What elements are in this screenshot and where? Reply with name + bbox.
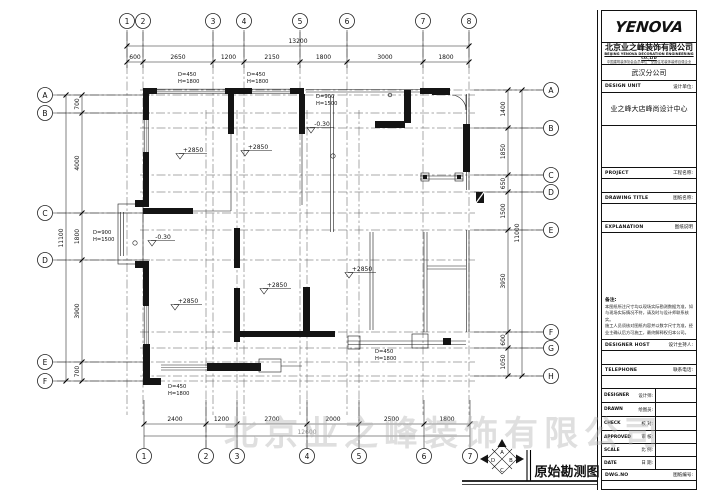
walls [118, 88, 470, 385]
field-label-cn: 设计单位: [673, 84, 693, 90]
dim-bottom-3: 2000 [325, 416, 340, 423]
window-label: D=450 [375, 349, 393, 355]
field-label-en: TELEPHONE [605, 368, 637, 373]
compass-letter-bottom: C [500, 468, 504, 474]
window-label: D=450 [168, 384, 186, 390]
field-date: DATE日 期: [602, 457, 696, 470]
field-label-en: DWG.NO [605, 473, 628, 478]
logo-text: YENOVA [614, 18, 684, 36]
dim-right-5: 600 [500, 334, 507, 346]
level-label: +2850 [352, 266, 372, 273]
field-label-en: DESIGNER HOST [605, 343, 650, 348]
window-label: H=1800 [168, 391, 189, 397]
remarks-line: 业主确认后方可施工，最终解释权归本公司。 [605, 330, 693, 337]
dim-right-0: 1400 [500, 101, 507, 116]
dim-right-2: 650 [500, 178, 507, 190]
field-drawn: DRAWN绘图员: [602, 403, 696, 417]
window-label: H=1500 [93, 237, 114, 243]
drawing-title-value-cell [602, 204, 696, 222]
grid-bubble-left-E: E [43, 358, 48, 367]
field-label-en: EXPLANATION [605, 225, 643, 230]
level-label: +2850 [178, 298, 198, 305]
approved-value-cell [656, 431, 696, 443]
field-dwg-no: DWG.NO 图纸编号: [602, 470, 696, 481]
dim-left-2: 1800 [74, 229, 81, 244]
dim-bottom-5: 1800 [439, 416, 454, 423]
designer-host-value-cell [602, 351, 696, 365]
remarks-line: 施工人员须核对图纸内容并以数字尺寸为准，经 [605, 323, 693, 330]
dim-left-3: 3900 [74, 303, 81, 318]
scale-value-cell [656, 444, 696, 456]
field-label-en: PROJECT [605, 171, 629, 176]
empty-cell [602, 126, 696, 168]
grid-bubble-left-C: C [42, 209, 47, 218]
level-label: +2850 [183, 147, 203, 154]
field-designer-host: DESIGNER HOST 设计主持人: [602, 340, 696, 351]
dim-right-total: 11000 [514, 223, 521, 242]
field-label-cn: 比 例: [641, 447, 653, 453]
dim-bottom-0: 2400 [167, 416, 182, 423]
remarks-title: 备注: [605, 296, 693, 303]
dim-top-1: 2650 [170, 54, 185, 61]
dim-right-1: 1850 [500, 144, 507, 159]
grid-bubble-top-6: 6 [345, 17, 350, 26]
field-label-cn: 联系电话: [673, 367, 693, 373]
grid-bubble-top-5: 5 [298, 17, 303, 26]
dim-top-5: 3000 [377, 54, 392, 61]
grid-bubble-left-D: D [42, 256, 48, 265]
dim-left-0: 700 [74, 98, 81, 110]
dim-top-total: 13200 [288, 38, 307, 45]
grid-bubble-left-F: F [43, 377, 47, 386]
grid-bubble-right-C: C [548, 171, 553, 180]
field-label-en: APPROVED [604, 435, 631, 440]
dim-top-4: 1800 [316, 54, 331, 61]
designer-value-cell [656, 389, 696, 402]
dim-top-3: 2150 [264, 54, 279, 61]
check-value-cell [656, 417, 696, 430]
empty-cell [602, 481, 696, 489]
dim-right-4: 3950 [500, 273, 507, 288]
grid-bubble-right-A: A [548, 86, 554, 95]
field-designer: DESIGNER设计师: [602, 389, 696, 403]
grid-bubble-top-8: 8 [467, 17, 472, 26]
grid-bubble-right-D: D [548, 188, 554, 197]
grid-bubble-bottom-6: 6 [422, 452, 427, 461]
drawn-value-cell [656, 403, 696, 416]
window-label: D=450 [178, 72, 196, 78]
grid-bubble-left-A: A [42, 91, 48, 100]
field-label-en: SCALE [604, 448, 620, 453]
level-label: +2850 [248, 144, 268, 151]
dim-chain-top: 13200 600 2650 1200 2150 1800 3000 1800 [125, 30, 472, 68]
orientation-compass-icon: A B C D [480, 439, 531, 481]
floor-plan-canvas: 13200 600 2650 1200 2150 1800 3000 1800 … [0, 0, 600, 499]
grid-bubble-right-G: G [548, 344, 554, 353]
grid-bubble-bottom-5: 5 [357, 452, 362, 461]
company-block: 北京业之峰装饰有限公司 BEIJING YENOVA DECORATION EN… [602, 43, 696, 65]
window-label: D=450 [247, 72, 265, 78]
grid-bubble-right-E: E [549, 226, 554, 235]
grid-bubble-right-F: F [549, 328, 553, 337]
floor-level-label: -0.30 [155, 234, 171, 241]
dim-left-total: 11100 [58, 228, 65, 247]
window-label: H=1800 [178, 79, 199, 85]
design-unit-value: 业之峰大店峰尚设计中心 [602, 93, 696, 126]
dim-top-6: 1800 [438, 54, 453, 61]
grid-bubble-right-H: H [548, 372, 554, 381]
field-label-cn: 图纸编号: [673, 472, 693, 478]
dim-bottom-2: 2700 [264, 416, 279, 423]
company-logo: YENOVA [602, 11, 696, 43]
compass-letter-top: A [500, 450, 504, 456]
dim-bottom-1: 1200 [214, 416, 229, 423]
field-label-en: DESIGNER [604, 393, 629, 398]
grid-bubble-bottom-1: 1 [142, 452, 147, 461]
field-scale: SCALE比 例: [602, 444, 696, 457]
field-label-cn: 审 核: [641, 434, 653, 440]
project-value-cell [602, 179, 696, 193]
field-label-en: DRAWN [604, 407, 623, 412]
field-label-cn: 工程名称: [673, 170, 693, 176]
grid-bubbles-left: A B C D E F [38, 88, 53, 389]
grid-bubble-top-7: 7 [421, 17, 426, 26]
grid-bubbles-top: 1 2 3 4 5 6 7 8 [120, 14, 477, 29]
field-drawing-title: DRAWING TITLE 图纸名称: [602, 193, 696, 204]
field-label-cn: 图纸名称: [673, 195, 693, 201]
field-project: PROJECT 工程名称: [602, 168, 696, 179]
field-label-cn: 设计师: [638, 393, 653, 399]
grid-bubbles-bottom: 1 2 3 4 5 6 7 [137, 449, 478, 464]
floor-level-label: -0.30 [314, 121, 330, 128]
field-design-unit: DESIGN UNIT 设计单位: [602, 81, 696, 93]
branch-name: 武汉分公司 [602, 65, 696, 81]
dim-left-4: 700 [74, 366, 81, 378]
field-label-en: DATE [604, 461, 617, 466]
window-label: H=1500 [316, 101, 337, 107]
drawing-title: 原始勘测图 [534, 464, 599, 480]
title-block: YENOVA 北京业之峰装饰有限公司 BEIJING YENOVA DECORA… [601, 10, 697, 490]
compass-letter-left: D [491, 458, 495, 464]
grid-bubble-top-4: 4 [242, 17, 247, 26]
grid-bubble-left-B: B [42, 109, 47, 118]
dim-top-2: 1200 [221, 54, 236, 61]
dim-left-1: 4000 [74, 155, 81, 170]
field-check: CHECK校 对: [602, 417, 696, 431]
grid-bubble-right-B: B [548, 124, 553, 133]
telephone-value-cell [602, 376, 696, 389]
field-telephone: TELEPHONE 联系电话: [602, 365, 696, 376]
remarks-line: 与现场实际情况不符，请及时与设计师联系核实。 [605, 310, 693, 323]
title-block-left-rule [597, 10, 598, 490]
grid-bubble-bottom-7: 7 [468, 452, 473, 461]
window-label: H=1800 [375, 356, 396, 362]
grid-bubble-top-3: 3 [211, 17, 216, 26]
window-label: H=1800 [247, 79, 268, 85]
dim-right-3: 1500 [500, 203, 507, 218]
field-label-en: DRAWING TITLE [605, 196, 648, 201]
compass-letter-right: B [509, 458, 513, 464]
grid-bubble-bottom-3: 3 [235, 452, 240, 461]
entry-marker-icon [476, 192, 484, 203]
remarks-cell: 备注: 本图纸所注尺寸均以现场实际勘测数据为准，如 与现场实际情况不符，请及时与… [602, 233, 696, 340]
date-value-cell [656, 457, 696, 469]
level-labels: +2850 +2850 +2850 +2850 +2850 -0.30 -0.3… [148, 121, 376, 310]
grid-bubbles-right: A B C D E F G H [544, 83, 559, 384]
dim-bottom-4: 2500 [384, 416, 399, 423]
field-label-cn: 校 对: [641, 421, 653, 427]
grid-bubble-top-1: 1 [125, 17, 130, 26]
field-approved: APPROVED审 核: [602, 431, 696, 444]
field-explanation: EXPLANATION 图纸说明 [602, 222, 696, 233]
level-label: +2850 [267, 282, 287, 289]
grid-bubble-top-2: 2 [141, 17, 146, 26]
window-label: D=900 [93, 230, 111, 236]
dim-chain-right: 1400 1850 650 1500 3950 600 1050 11000 [474, 88, 543, 379]
grid-bubble-bottom-2: 2 [204, 452, 209, 461]
dim-bottom-total: 12600 [297, 429, 316, 436]
field-label-cn: 日 期: [641, 460, 653, 466]
dim-top-0: 600 [129, 54, 141, 61]
window-label: D=900 [316, 94, 334, 100]
company-subtitle: 中国建筑装饰协会会员单位 · 全国住宅装饰装修百强企业 [602, 61, 696, 65]
drawing-sheet: 13200 600 2650 1200 2150 1800 3000 1800 … [0, 0, 702, 499]
field-label-en: CHECK [604, 421, 621, 426]
field-label-cn: 绘图员: [638, 407, 653, 413]
field-label-en: DESIGN UNIT [605, 84, 641, 89]
dim-right-6: 1050 [500, 354, 507, 369]
grid-bubble-bottom-4: 4 [305, 452, 310, 461]
field-label-cn: 图纸说明 [675, 224, 693, 230]
field-label-cn: 设计主持人: [668, 342, 693, 348]
